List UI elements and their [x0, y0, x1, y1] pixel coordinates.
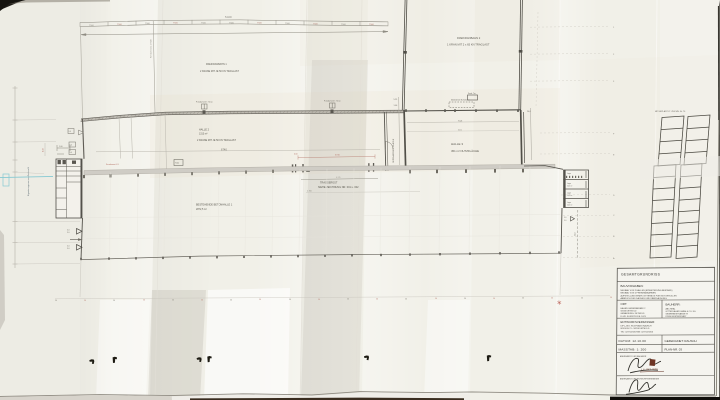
- svg-text:IM ESCH 21 - 58256 DETMOLD: IM ESCH 21 - 58256 DETMOLD: [621, 328, 650, 330]
- svg-text:50: 50: [610, 297, 612, 299]
- svg-text:50: 50: [201, 299, 203, 301]
- svg-text:50: 50: [84, 300, 86, 302]
- svg-text:6.745: 6.745: [336, 177, 341, 179]
- svg-text:HALLE 3: HALLE 3: [451, 142, 463, 146]
- svg-text:GEZEICHNET: RAUSCH: GEZEICHNET: RAUSCH: [665, 339, 697, 343]
- svg-text:7500: 7500: [257, 23, 263, 25]
- svg-text:7500: 7500: [173, 23, 179, 25]
- svg-text:50: 50: [551, 298, 553, 300]
- svg-text:MASSTAB: 1: 200: MASSTAB: 1: 200: [619, 347, 647, 351]
- svg-text:7500: 7500: [285, 23, 291, 25]
- svg-text:HAGEN GEWERBEPARK 2: HAGEN GEWERBEPARK 2: [621, 307, 647, 310]
- svg-text:GEMARKUNG: DETMOLD: GEMARKUNG: DETMOLD: [621, 312, 646, 315]
- svg-text:50: 50: [376, 299, 378, 301]
- svg-text:ANERKANNT: DER ENTWURFSVERFAS: ANERKANNT: DER ENTWURFSVERFASSER: [620, 378, 660, 381]
- svg-text:DIPL.-ING. WOLFGANG RAUSCH: DIPL.-ING. WOLFGANG RAUSCH: [621, 325, 653, 328]
- svg-text:7500: 7500: [313, 23, 319, 25]
- svg-text:7500: 7500: [89, 25, 95, 27]
- svg-text:DATUM: 12.10.00: DATUM: 12.10.00: [619, 339, 647, 343]
- svg-text:1.00: 1.00: [59, 146, 63, 148]
- svg-text:ANERKANNT: DER BAUHERR: ANERKANNT: DER BAUHERR: [620, 355, 647, 358]
- svg-text:Fundament f. Kran: Fundament f. Kran: [196, 101, 213, 104]
- svg-text:50: 50: [405, 298, 407, 300]
- svg-text:2 KRANE MIT JE 50 KN TRAGLAST: 2 KRANE MIT JE 50 KN TRAGLAST: [197, 139, 237, 142]
- svg-text:Fundament f. K: Fundament f. K: [106, 163, 120, 166]
- svg-text:50: 50: [230, 299, 232, 301]
- svg-text:Lager: Lager: [567, 202, 572, 204]
- svg-text:PLAN-NR. 03: PLAN-NR. 03: [665, 348, 683, 352]
- svg-text:2.700: 2.700: [307, 190, 312, 192]
- svg-text:5.25: 5.25: [394, 99, 398, 101]
- svg-text:ABBRUCH DES DACHES UND ÜBERDAC: ABBRUCH DES DACHES UND ÜBERDACHUNG: [621, 297, 668, 300]
- svg-text:SIEHE ZEICHNUNG NR. 001 u. 002: SIEHE ZEICHNUNG NR. 001 u. 002: [318, 186, 359, 189]
- svg-text:Lager: Lager: [567, 193, 572, 195]
- svg-text:50: 50: [581, 297, 583, 299]
- svg-text:7500: 7500: [201, 23, 207, 25]
- svg-text:50: 50: [113, 300, 115, 302]
- svg-text:Trafo: Trafo: [175, 163, 179, 165]
- svg-text:TRAGGERÜST: TRAGGERÜST: [320, 182, 338, 185]
- svg-text:NEUBAU VON 2 HALLEN (ERWEITERU: NEUBAU VON 2 HALLEN (ERWEITERUNG BESTAND…: [621, 289, 673, 292]
- svg-text:5.0: 5.0: [564, 217, 566, 219]
- svg-text:FREIKRANBAHN 1: FREIKRANBAHN 1: [206, 63, 227, 66]
- svg-text:50: 50: [172, 300, 174, 302]
- svg-text:7500: 7500: [341, 24, 347, 26]
- svg-text:7500: 7500: [117, 24, 123, 26]
- svg-text:ENTWURFSVERFASSER:: ENTWURFSVERFASSER:: [621, 320, 656, 324]
- svg-text:50: 50: [289, 299, 291, 301]
- svg-text:HALLE 2: HALLE 2: [199, 129, 210, 132]
- svg-text:Fundament f. Kran: Fundament f. Kran: [324, 100, 341, 103]
- svg-text:NEUBAU VON 2 FREIKRANBAHNEN: NEUBAU VON 2 FREIKRANBAHNEN: [621, 292, 657, 295]
- svg-text:BESTEHENDE BETONHALLE 1: BESTEHENDE BETONHALLE 1: [196, 204, 233, 207]
- svg-text:50: 50: [55, 300, 57, 302]
- svg-text:2872,5 m²: 2872,5 m²: [196, 208, 207, 211]
- svg-text:7500: 7500: [145, 23, 151, 25]
- svg-text:TEL: 02371/2345 FAX: 023: TEL: 02371/2345 FAX: 02371/23456: [621, 331, 654, 334]
- svg-text:50: 50: [493, 298, 495, 300]
- svg-text:Eigentumsgrenze von Zeichen B: Eigentumsgrenze von Zeichen B: [27, 166, 30, 196]
- svg-text:MITGEPLANT LT. ZEICHN. Nr. 76: MITGEPLANT LT. ZEICHN. Nr. 76: [655, 110, 686, 113]
- svg-text:50: 50: [143, 300, 145, 302]
- svg-text:GEWERBESTRASSE 99: GEWERBESTRASSE 99: [666, 313, 689, 316]
- svg-text:1 KRAN MIT 2 x 65 KN TRAGLAST: 1 KRAN MIT 2 x 65 KN TRAGLAST: [447, 43, 490, 47]
- svg-text:7500: 7500: [369, 24, 375, 26]
- svg-text:GITTERLAGER GMBH & CO. KG: GITTERLAGER GMBH & CO. KG: [666, 310, 697, 313]
- svg-text:GESAMTGRUNDRISS: GESAMTGRUNDRISS: [621, 272, 661, 276]
- svg-text:1.0: 1.0: [69, 131, 71, 133]
- svg-text:7500: 7500: [229, 22, 235, 24]
- svg-text:451 m² NUTZFLÄCHE: 451 m² NUTZFLÄCHE: [451, 149, 479, 153]
- svg-text:54100: 54100: [225, 16, 232, 19]
- svg-text:5.0: 5.0: [67, 248, 70, 250]
- svg-text:24,0: 24,0: [575, 233, 577, 237]
- svg-text:50: 50: [464, 298, 466, 300]
- svg-text:6740: 6740: [221, 147, 227, 151]
- svg-text:2 KRANE MIT JE 50 KN TRAGLAST: 2 KRANE MIT JE 50 KN TRAGLAST: [200, 70, 240, 73]
- svg-text:50: 50: [259, 299, 261, 301]
- svg-text:50: 50: [522, 298, 524, 300]
- svg-text:24,0: 24,0: [527, 111, 531, 113]
- svg-text:Fund. Tor: Fund. Tor: [468, 93, 476, 95]
- svg-text:ORT:: ORT:: [621, 302, 628, 306]
- svg-text:5.0: 5.0: [564, 220, 566, 222]
- svg-text:4,50: 4,50: [43, 148, 45, 152]
- svg-text:50: 50: [318, 299, 320, 301]
- svg-text:FREIKRANBAHN 2: FREIKRANBAHN 2: [457, 36, 481, 40]
- svg-text:Fahrbahnmitte 2.7500: Fahrbahnmitte 2.7500: [150, 40, 153, 59]
- svg-text:87654 MUSTERSTADT: 87654 MUSTERSTADT: [666, 315, 688, 318]
- svg-text:GEPFLASTERTE FLÄCHE: GEPFLASTERTE FLÄCHE: [392, 138, 395, 163]
- svg-text:BAUVORHABEN:: BAUVORHABEN:: [621, 284, 644, 288]
- svg-text:Lager: Lager: [567, 173, 572, 175]
- svg-text:FLUR: FLURSTÜCKE: 1623: FLUR: FLURSTÜCKE: 1623: [621, 315, 647, 318]
- svg-text:50: 50: [347, 299, 349, 301]
- svg-text:6740: 6740: [335, 154, 341, 156]
- svg-text:50: 50: [435, 298, 437, 300]
- svg-text:5.0: 5.0: [67, 232, 70, 234]
- svg-text:6000x4500 Schiebetor: 6000x4500 Schiebetor: [451, 99, 470, 102]
- svg-text:5.0: 5.0: [70, 152, 72, 154]
- svg-text:BAUHERR:: BAUHERR:: [666, 302, 681, 306]
- svg-text:1313 m²: 1313 m²: [199, 133, 208, 136]
- svg-text:ABC REAL: ABC REAL: [666, 307, 677, 310]
- svg-text:AUFSTELLUNG EINER GITTERBOX FÜ: AUFSTELLUNG EINER GITTERBOX FÜR MOTORROL…: [621, 294, 678, 297]
- svg-text:1.00: 1.00: [394, 105, 398, 107]
- svg-text:Lager: Lager: [567, 183, 572, 185]
- svg-text:1 6. OKT. 2000: 1 6. OKT. 2000: [641, 368, 658, 372]
- svg-text:4,50: 4,50: [294, 154, 298, 156]
